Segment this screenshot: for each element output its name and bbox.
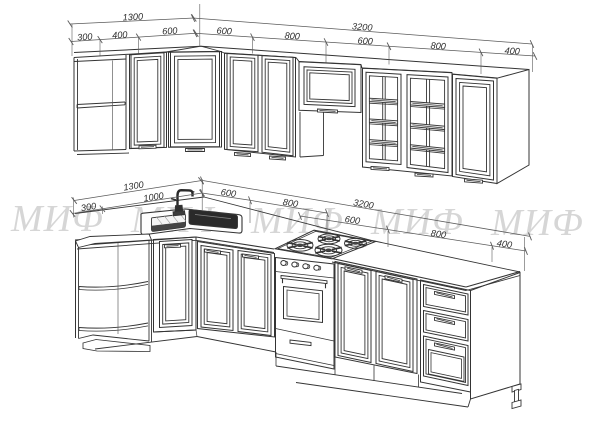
svg-text:МИФ: МИФ xyxy=(490,202,584,244)
svg-text:400: 400 xyxy=(504,46,521,57)
svg-text:600: 600 xyxy=(357,36,374,47)
svg-text:800: 800 xyxy=(430,41,447,52)
svg-text:3200: 3200 xyxy=(352,21,374,33)
svg-text:800: 800 xyxy=(284,31,301,42)
svg-text:600: 600 xyxy=(216,26,233,37)
svg-text:400: 400 xyxy=(112,29,129,40)
svg-text:МИФ: МИФ xyxy=(370,201,464,243)
svg-text:1300: 1300 xyxy=(122,11,144,22)
svg-text:600: 600 xyxy=(162,25,179,36)
svg-text:300: 300 xyxy=(77,31,94,42)
